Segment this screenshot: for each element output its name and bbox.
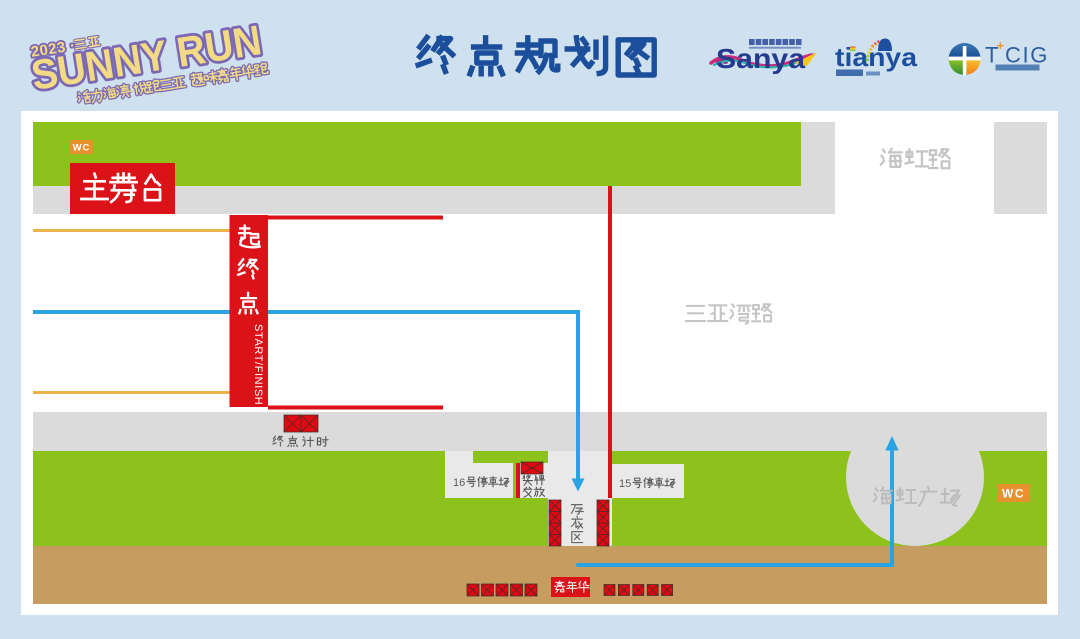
- svg-text:16: 16: [453, 477, 465, 489]
- svg-text:CIG: CIG: [1005, 43, 1049, 68]
- svg-text:Sanya: Sanya: [716, 43, 805, 74]
- svg-text:15: 15: [619, 478, 631, 490]
- svg-text:START/FINISH: START/FINISH: [252, 324, 264, 405]
- svg-text:WC: WC: [1002, 487, 1025, 501]
- svg-text:WC: WC: [73, 143, 91, 154]
- svg-text:tianya: tianya: [835, 42, 918, 72]
- svg-text:+: +: [997, 38, 1005, 53]
